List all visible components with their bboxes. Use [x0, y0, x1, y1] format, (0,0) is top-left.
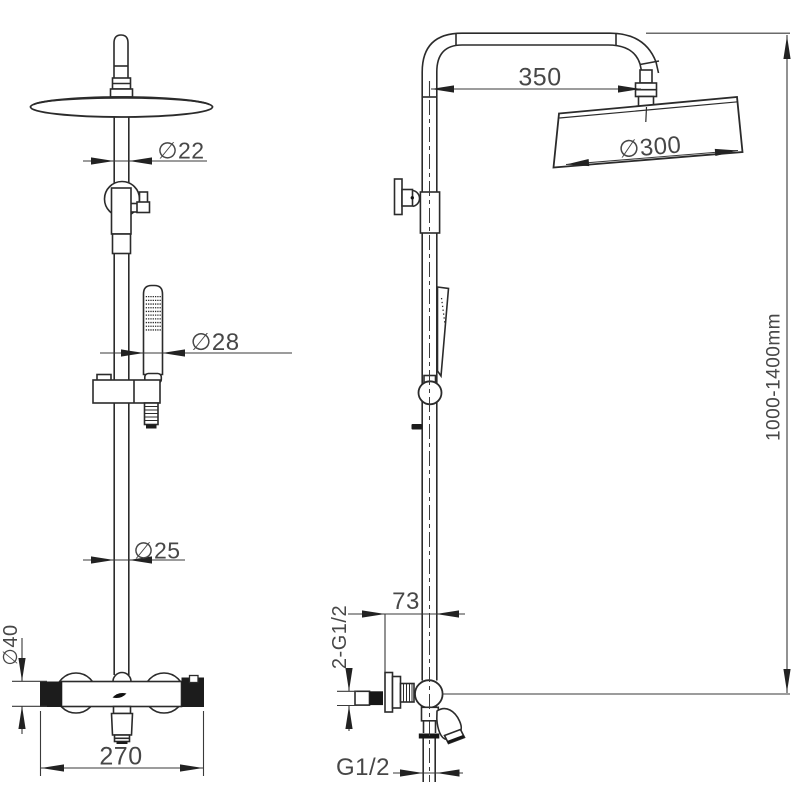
dim-outlet-thread: G1/2	[336, 756, 390, 780]
wall-bracket-front	[105, 182, 150, 254]
dim-arm-pipe-diameter: ∅22	[157, 140, 204, 163]
left-handle	[40, 682, 62, 708]
valve-body-circle	[415, 680, 443, 708]
bracket-screw-dot	[411, 196, 414, 199]
hand-shower-front	[144, 286, 163, 384]
dim-arm-projection: 350	[518, 66, 561, 91]
dim-wall-offset: 73	[392, 590, 420, 614]
side-view	[355, 33, 743, 782]
shower-technical-drawing: ∅22 ∅28 ∅25 ∅40 270 350 ∅300 1000-1400mm…	[0, 0, 800, 800]
mixer-valve-front	[40, 673, 204, 745]
shower-head-front	[31, 97, 213, 117]
slider-holder-front	[93, 375, 160, 429]
safety-button	[190, 676, 199, 683]
inlet-nipple	[355, 691, 370, 705]
drawing-linework	[0, 0, 800, 800]
wall-bracket-side	[395, 179, 440, 233]
shower-arm-front	[111, 35, 133, 97]
dim-hand-shower-diameter: ∅28	[190, 331, 239, 355]
dim-riser-pipe-diameter: ∅25	[133, 540, 180, 563]
dim-inlet-thread: 2-G1/2	[330, 605, 350, 669]
dim-height-range: 1000-1400mm	[765, 313, 784, 441]
dim-head-diameter: ∅300	[618, 133, 683, 162]
dim-valve-body-diameter: ∅40	[1, 624, 21, 665]
dim-valve-width: 270	[99, 745, 142, 770]
